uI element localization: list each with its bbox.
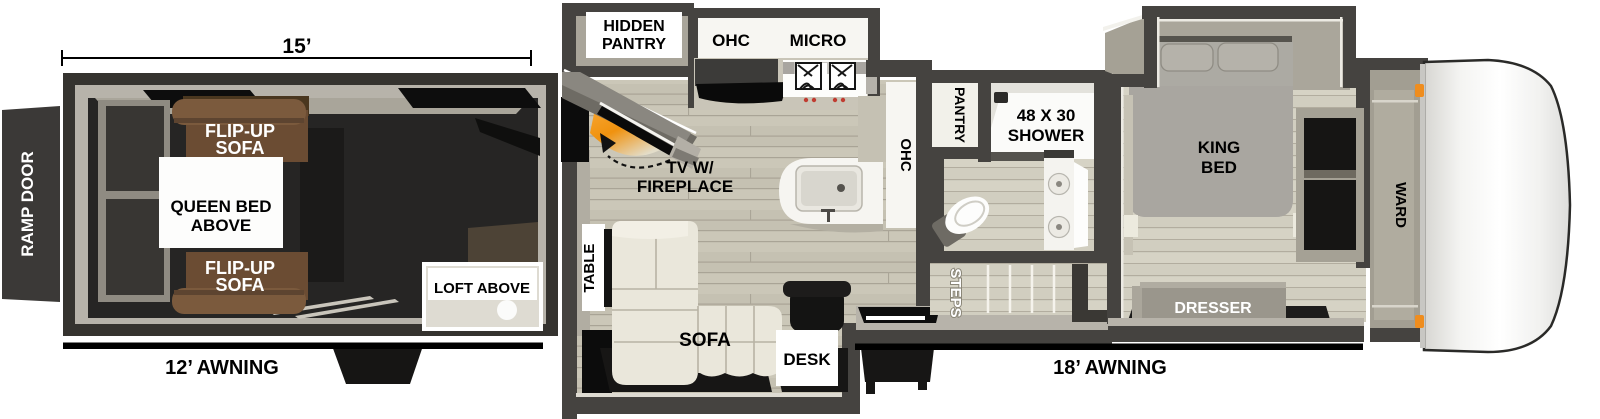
svg-text:DESK: DESK [783, 350, 831, 369]
svg-text:LOFT ABOVE: LOFT ABOVE [434, 280, 530, 297]
svg-text:ABOVE: ABOVE [191, 216, 251, 235]
svg-text:TABLE: TABLE [581, 244, 598, 293]
svg-text:SOFA: SOFA [215, 138, 264, 158]
svg-text:WARD: WARD [1392, 182, 1409, 228]
svg-text:MICRO: MICRO [790, 31, 847, 50]
svg-text:PANTRY: PANTRY [952, 87, 968, 144]
svg-text:TV W/: TV W/ [666, 158, 713, 177]
svg-text:QUEEN BED: QUEEN BED [170, 197, 271, 216]
svg-text:FIREPLACE: FIREPLACE [637, 177, 733, 196]
svg-text:OHC: OHC [712, 31, 750, 50]
svg-text:18’ AWNING: 18’ AWNING [1053, 357, 1167, 379]
svg-text:RAMP DOOR: RAMP DOOR [18, 151, 37, 256]
svg-text:HIDDEN: HIDDEN [603, 18, 664, 35]
svg-text:STEPS: STEPS [947, 268, 964, 317]
svg-text:KING: KING [1198, 138, 1241, 157]
svg-text:OHC: OHC [897, 138, 914, 172]
svg-text:12’ AWNING: 12’ AWNING [165, 357, 279, 379]
svg-text:48 X 30: 48 X 30 [1017, 106, 1076, 125]
svg-text:SHOWER: SHOWER [1008, 126, 1085, 145]
svg-text:PANTRY: PANTRY [602, 36, 666, 53]
svg-text:BED: BED [1201, 158, 1237, 177]
svg-text:SOFA: SOFA [679, 330, 731, 351]
svg-text:SOFA: SOFA [215, 275, 264, 295]
svg-text:15’: 15’ [282, 35, 311, 58]
svg-text:DRESSER: DRESSER [1174, 300, 1252, 317]
